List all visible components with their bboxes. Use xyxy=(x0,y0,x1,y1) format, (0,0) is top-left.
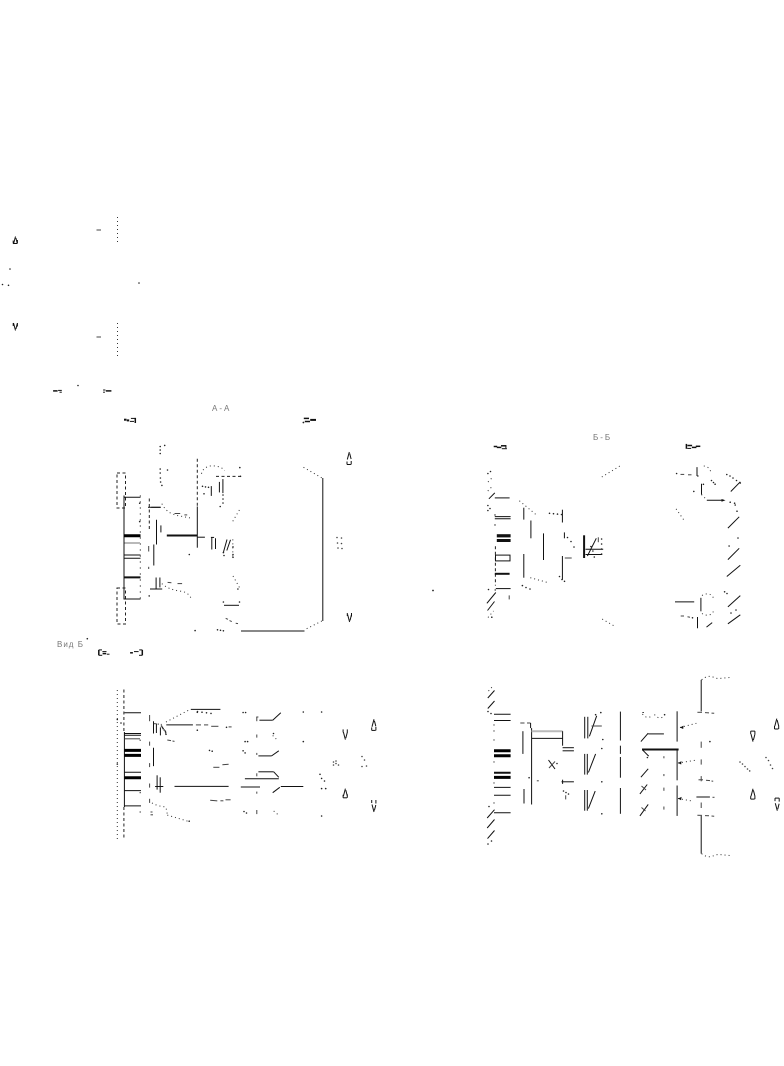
svg-text:A-A: A-A xyxy=(212,404,231,413)
svg-text:Вид Б: Вид Б xyxy=(57,640,84,649)
svg-text:Б-Б: Б-Б xyxy=(593,433,612,442)
